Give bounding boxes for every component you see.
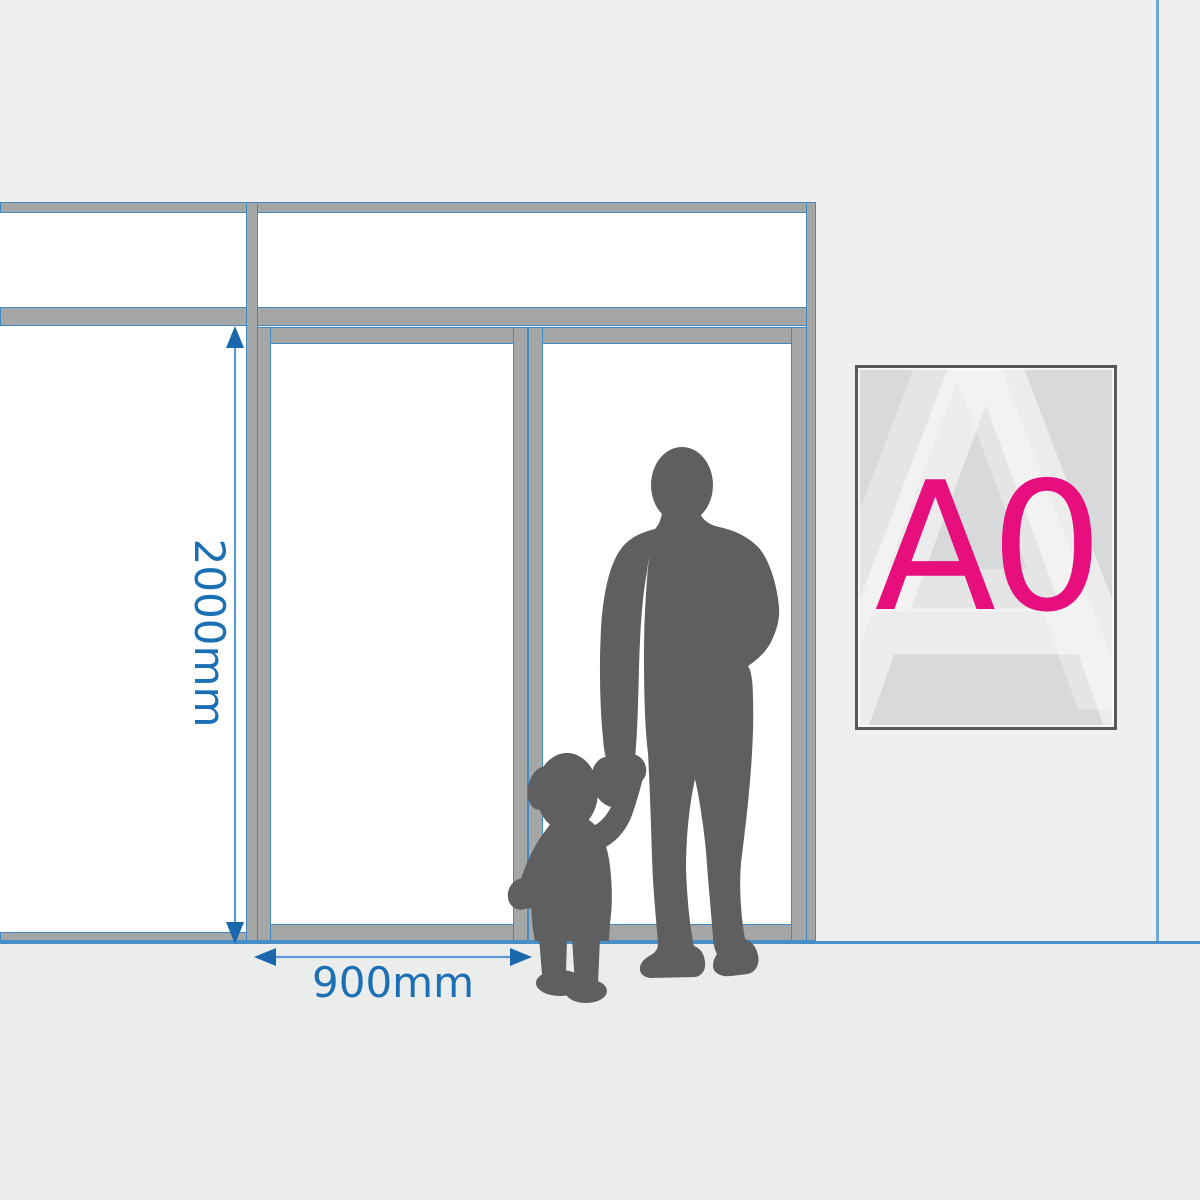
child-silhouette bbox=[503, 750, 650, 1003]
height-dimension-label: 2000mm bbox=[186, 523, 232, 743]
overlay-drawing bbox=[0, 0, 1200, 1200]
size-guide-diagram: A A A0 bbox=[0, 0, 1200, 1200]
width-dimension-label: 900mm bbox=[283, 960, 503, 1006]
adult-silhouette bbox=[585, 447, 779, 978]
